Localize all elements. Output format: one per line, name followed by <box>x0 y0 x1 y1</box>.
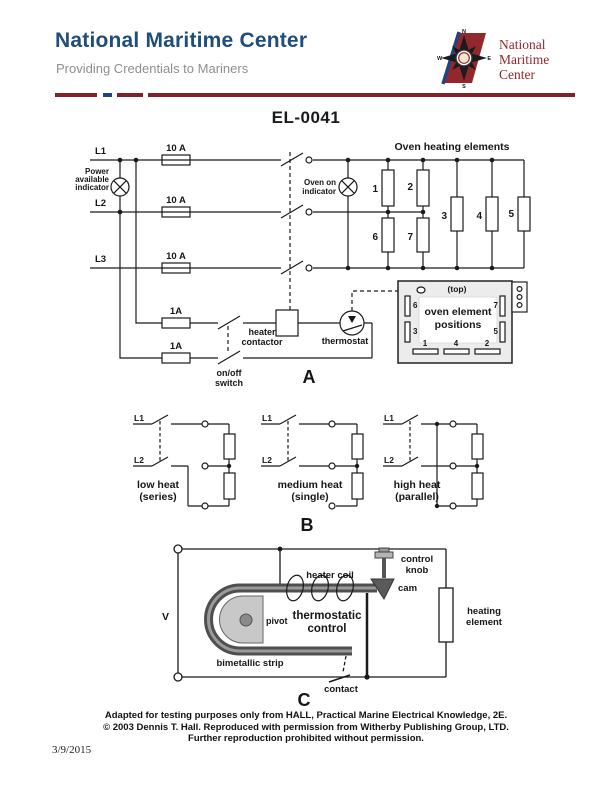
header-rule <box>55 93 575 97</box>
label-pos-7: 7 <box>494 301 499 310</box>
label-fuse-c2: 1A <box>170 341 182 352</box>
label-thermostatic: thermostatic <box>292 610 362 622</box>
pivot-block <box>220 596 264 643</box>
label-element-3: 3 <box>441 211 447 222</box>
label-contact: contact <box>324 684 359 695</box>
caption-high-heat: high heat <box>394 479 441 491</box>
label-element-7: 7 <box>407 232 413 243</box>
element-2 <box>417 170 429 206</box>
caption-high-heat-mode: (parallel) <box>395 491 439 503</box>
switch-terminal <box>306 157 312 163</box>
label-control-knob: control <box>401 554 433 565</box>
caption-low-heat-mode: (series) <box>139 491 176 503</box>
page-title: National Maritime Center <box>55 29 307 53</box>
element-5 <box>518 197 530 231</box>
label-l2: L2 <box>95 198 106 209</box>
heating-element-c <box>439 588 453 642</box>
caption-low-heat: low heat <box>137 479 180 491</box>
label-pos-3: 3 <box>413 327 418 336</box>
rule-segment-blue <box>103 93 112 97</box>
label-pos-5: 5 <box>494 327 499 336</box>
label-element-1: 1 <box>372 184 378 195</box>
pivot-point <box>240 614 252 626</box>
label-b3-l1: L1 <box>384 413 394 423</box>
element-7 <box>417 218 429 252</box>
label-bimetallic: bimetallic strip <box>216 658 283 669</box>
fuse-control-2 <box>162 353 190 363</box>
compass-n: N <box>462 29 466 35</box>
label-b3-l2: L2 <box>384 455 394 465</box>
header-tagline: Providing Credentials to Mariners <box>56 61 248 76</box>
label-b2-l2: L2 <box>262 455 272 465</box>
nmc-logo: N S W E <box>435 27 493 89</box>
copyright-line-1: Adapted for testing purposes only from H… <box>0 710 612 722</box>
label-heating-element: element <box>466 617 503 628</box>
caption-medium-heat-mode: (single) <box>291 491 328 503</box>
label-thermostat: thermostat <box>322 336 369 346</box>
logo-word-2: Maritime <box>499 52 549 67</box>
element-6 <box>382 218 394 252</box>
label-pos-2: 2 <box>485 339 490 348</box>
label-b2-l1: L1 <box>262 413 272 423</box>
power-indicator-lamp <box>111 178 129 196</box>
label-l1: L1 <box>95 146 107 157</box>
label-cam: cam <box>398 583 417 594</box>
label-heater-coil: heater coil <box>306 570 354 581</box>
section-label-b: B <box>301 515 314 535</box>
label-contactor: contactor <box>241 337 283 347</box>
label-power-indicator: indicator <box>75 183 109 192</box>
section-label-a: A <box>303 367 316 387</box>
c-contact-blade <box>329 675 350 682</box>
label-box-caption: oven element <box>424 306 492 318</box>
label-voltage: V <box>162 611 169 623</box>
label-pos-1: 1 <box>423 339 428 348</box>
contactor-coil <box>276 310 298 336</box>
label-element-5: 5 <box>508 209 514 220</box>
document-code: EL-0041 <box>0 108 612 128</box>
label-box-top: (top) <box>448 284 467 294</box>
label-heating-element: heating <box>467 606 501 617</box>
onoff-blades <box>218 316 240 364</box>
label-box-caption: positions <box>435 319 482 331</box>
label-fuse-l3: 10 A <box>166 251 186 262</box>
diagram-b-labels: L1 L2 low heat (series) L1 L2 medium hea… <box>134 413 441 535</box>
label-contactor: heater <box>248 327 276 337</box>
logo-wordmark: National Maritime Center <box>499 37 549 82</box>
thermostat-symbol <box>340 311 364 335</box>
label-element-2: 2 <box>407 182 413 193</box>
label-element-6: 6 <box>372 232 378 243</box>
diagram-c: V heater coil control knob cam pivot the… <box>0 540 612 712</box>
label-control-knob: knob <box>406 565 429 576</box>
c-contact-link-dashed <box>343 656 346 672</box>
print-date: 3/9/2015 <box>52 744 91 756</box>
label-pivot: pivot <box>266 616 288 626</box>
compass-s: S <box>462 84 466 89</box>
rule-segment <box>55 93 97 97</box>
section-label-c: C <box>298 690 311 710</box>
label-elements-title: Oven heating elements <box>395 141 510 153</box>
label-fuse-c1: 1A <box>170 306 182 317</box>
diagram-b: L1 L2 low heat (series) L1 L2 medium hea… <box>0 405 612 540</box>
copyright-line-2: © 2003 Dennis T. Hall. Reproduced with p… <box>0 722 612 734</box>
knob-base <box>375 552 393 558</box>
logo-word-1: National <box>499 37 549 52</box>
copyright-line-3: Further reproduction prohibited without … <box>0 733 612 745</box>
label-pos-4: 4 <box>454 339 459 348</box>
label-onoff: on/off <box>217 368 243 378</box>
oven-on-lamp <box>339 178 357 196</box>
terminal-top <box>174 545 182 553</box>
label-element-4: 4 <box>476 211 482 222</box>
rule-segment <box>117 93 143 97</box>
compass-e: E <box>487 56 491 62</box>
compass-center-seal <box>459 53 470 64</box>
logo-word-3: Center <box>499 67 549 82</box>
label-pos-6: 6 <box>413 301 418 310</box>
label-l3: L3 <box>95 254 106 265</box>
switch-terminal <box>306 265 312 271</box>
thermostat-sensor <box>417 287 425 293</box>
main-switch-blades <box>281 153 303 274</box>
label-fuse-l2: 10 A <box>166 195 186 206</box>
element-3 <box>451 197 463 231</box>
fuse-control-1 <box>162 318 190 328</box>
switch-terminal <box>306 209 312 215</box>
label-fuse-l1: 10 A <box>166 143 186 154</box>
knob-cap <box>379 548 389 552</box>
label-b1-l1: L1 <box>134 413 144 423</box>
label-oven-on: indicator <box>302 187 336 196</box>
diagram-a: L1 L2 L3 10 A 10 A 10 A 1A 1A Power avai… <box>0 136 612 400</box>
document-page: National Maritime Center Providing Crede… <box>0 0 612 792</box>
rule-segment <box>148 93 575 97</box>
terminal-bottom <box>174 673 182 681</box>
label-oven-on: Oven on <box>304 178 336 187</box>
label-thermostatic: control <box>308 623 347 635</box>
label-onoff: switch <box>215 378 243 388</box>
compass-w: W <box>437 56 443 62</box>
caption-medium-heat: medium heat <box>278 479 343 491</box>
copyright-notice: Adapted for testing purposes only from H… <box>0 710 612 745</box>
label-b1-l2: L2 <box>134 455 144 465</box>
element-1 <box>382 170 394 206</box>
element-4 <box>486 197 498 231</box>
